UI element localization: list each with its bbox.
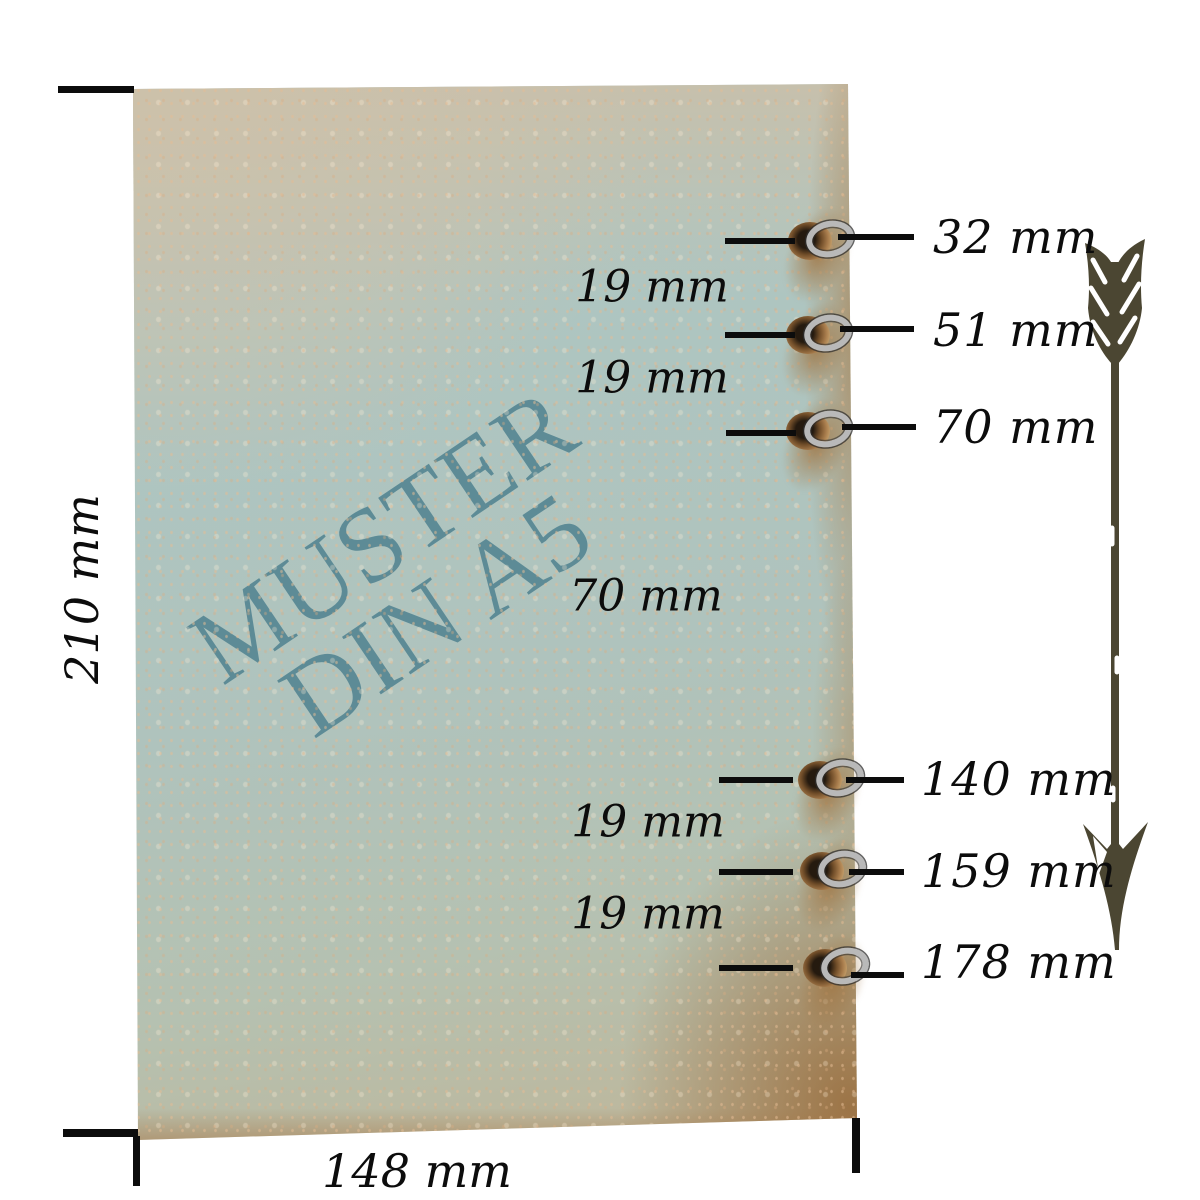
gap-label-1: 19 mm: [575, 262, 728, 313]
gap-label-5: 19 mm: [571, 889, 724, 940]
leader-line: [846, 777, 904, 783]
tick-bottom-left-h: [63, 1129, 138, 1137]
tick-bottom-right-v: [852, 1118, 860, 1173]
leader-line: [725, 238, 795, 244]
hole-distance-label-1: 32 mm: [933, 210, 1098, 264]
leader-line: [725, 332, 795, 338]
leader-line: [719, 869, 793, 875]
gap-label-4: 19 mm: [571, 797, 724, 848]
gap-label-3: 70 mm: [569, 571, 722, 622]
watermark-line1: MUSTER: [176, 374, 591, 697]
leader-line: [838, 234, 914, 240]
width-dimension-label: 148 mm: [322, 1144, 512, 1198]
gap-label-2: 19 mm: [575, 353, 728, 404]
tick-bottom-left-v: [133, 1136, 140, 1186]
leader-line: [719, 965, 793, 971]
height-dimension-label: 210 mm: [55, 494, 109, 684]
tick-top-left: [58, 86, 134, 93]
hole-distance-label-4: 140 mm: [921, 752, 1117, 806]
leader-line: [840, 326, 914, 332]
hole-position-diagram: MUSTER DIN A5 210 mm 148 mm: [0, 0, 1200, 1200]
hole-distance-label-6: 178 mm: [921, 935, 1117, 989]
hole-distance-label-3: 70 mm: [933, 400, 1098, 454]
leader-line: [719, 777, 793, 783]
hole-distance-label-2: 51 mm: [933, 303, 1098, 357]
leader-line: [726, 430, 796, 436]
leader-line: [842, 424, 916, 430]
hole-distance-label-5: 159 mm: [921, 844, 1117, 898]
leader-line: [851, 972, 904, 978]
leader-line: [849, 869, 904, 875]
